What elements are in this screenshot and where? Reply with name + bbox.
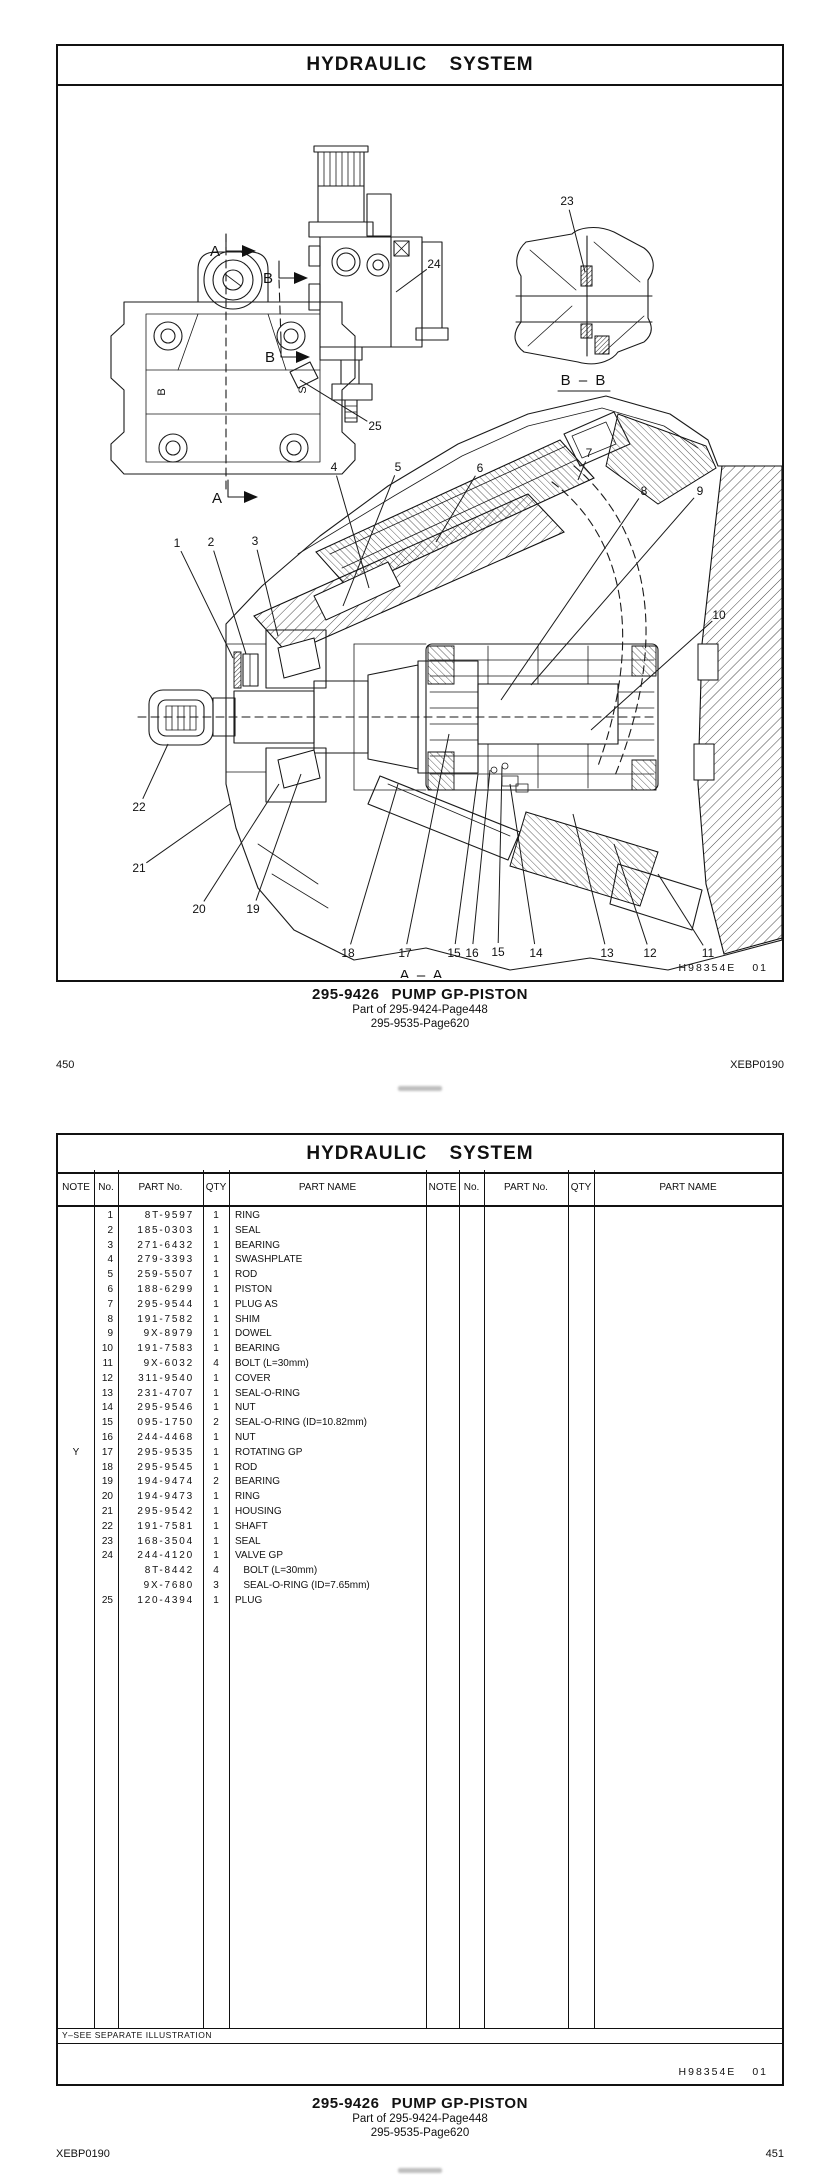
table-row: 23 168-3504 1 SEAL xyxy=(58,1535,782,1550)
cell-qty: 1 xyxy=(203,1342,229,1357)
cell-part-name: BEARING xyxy=(229,1342,426,1357)
cell-part-no: 191-7581 xyxy=(118,1520,203,1535)
callout-label: 15 xyxy=(491,945,505,959)
cell-part-no: 8T-9597 xyxy=(118,1209,203,1224)
print-mark xyxy=(398,2168,442,2173)
callout-leader xyxy=(498,766,502,943)
cell-note xyxy=(58,1357,94,1372)
cell-note xyxy=(58,1298,94,1313)
cell-no: 24 xyxy=(94,1549,118,1564)
cell-no: 10 xyxy=(94,1342,118,1357)
callout-leader xyxy=(143,744,168,799)
callout-label: 13 xyxy=(600,946,614,960)
cell-part-no: 244-4120 xyxy=(118,1549,203,1564)
callout-label: 9 xyxy=(697,484,704,498)
cell-part-no: 295-9535 xyxy=(118,1446,203,1461)
table-row: 21 295-9542 1 HOUSING xyxy=(58,1505,782,1520)
callout-leader xyxy=(214,551,246,654)
cell-qty: 3 xyxy=(203,1579,229,1594)
cell-part-name: SEAL xyxy=(229,1224,426,1239)
callout-leader xyxy=(591,621,712,730)
cell-qty: 1 xyxy=(203,1490,229,1505)
cell-qty: 1 xyxy=(203,1224,229,1239)
cell-part-name: SEAL-O-RING (ID=7.65mm) xyxy=(229,1579,426,1594)
cell-note xyxy=(58,1520,94,1535)
cell-no: 4 xyxy=(94,1253,118,1268)
cell-no: 17 xyxy=(94,1446,118,1461)
cell-qty: 1 xyxy=(203,1239,229,1254)
cell-no: 5 xyxy=(94,1268,118,1283)
pump-top-view: B S xyxy=(111,234,355,494)
cell-qty: 1 xyxy=(203,1268,229,1283)
cell-note xyxy=(58,1431,94,1446)
table-row: 8T-8442 4 BOLT (L=30mm) xyxy=(58,1564,782,1579)
cell-note xyxy=(58,1416,94,1431)
section-b-b-view: B – B xyxy=(515,228,653,391)
drawing-code: H98354E01 xyxy=(679,2066,768,2078)
callout-label: 21 xyxy=(132,861,146,875)
callout-label: 4 xyxy=(331,460,338,474)
cell-part-no: 295-9542 xyxy=(118,1505,203,1520)
pump-diagram: B S A A B B xyxy=(58,84,782,978)
cell-no: 7 xyxy=(94,1298,118,1313)
section-letter-a-bottom: A xyxy=(212,490,222,507)
cell-no: 25 xyxy=(94,1594,118,1609)
cell-part-no: 295-9544 xyxy=(118,1298,203,1313)
port-label-b: B xyxy=(156,388,168,395)
page-title-bar: HYDRAULIC SYSTEM xyxy=(58,1135,782,1174)
cell-note xyxy=(58,1253,94,1268)
cell-note xyxy=(58,1401,94,1416)
cell-qty: 4 xyxy=(203,1357,229,1372)
cell-no: 19 xyxy=(94,1475,118,1490)
cell-no: 22 xyxy=(94,1520,118,1535)
table-row: 18 295-9545 1 ROD xyxy=(58,1461,782,1476)
cell-note xyxy=(58,1387,94,1402)
cell-note xyxy=(58,1579,94,1594)
cell-qty: 2 xyxy=(203,1475,229,1490)
cell-part-no: 9X-7680 xyxy=(118,1579,203,1594)
col-note: NOTE xyxy=(58,1182,94,1193)
callout-label: 5 xyxy=(395,460,402,474)
cell-part-no: 188-6299 xyxy=(118,1283,203,1298)
cell-part-no: 271-6432 xyxy=(118,1239,203,1254)
cell-qty: 1 xyxy=(203,1387,229,1402)
table-row: 9X-7680 3 SEAL-O-RING (ID=7.65mm) xyxy=(58,1579,782,1594)
cell-qty: 1 xyxy=(203,1327,229,1342)
table-row: 24 244-4120 1 VALVE GP xyxy=(58,1549,782,1564)
cell-no: 23 xyxy=(94,1535,118,1550)
drawing-code-value: H98354E xyxy=(679,2066,737,2078)
callout-label: 25 xyxy=(368,419,382,433)
caption-parent-ref: Part of 295-9424-Page448 xyxy=(0,1003,840,1017)
cell-part-name: VALVE GP xyxy=(229,1549,426,1564)
cell-part-name: SHIM xyxy=(229,1313,426,1328)
cell-qty: 1 xyxy=(203,1505,229,1520)
callout-leader xyxy=(256,774,301,901)
cell-no: 14 xyxy=(94,1401,118,1416)
cell-note xyxy=(58,1209,94,1224)
caption-alt-ref: 295-9535-Page620 xyxy=(0,2126,840,2140)
table-row: 22 191-7581 1 SHAFT xyxy=(58,1520,782,1535)
callout-label: 2 xyxy=(208,535,215,549)
cell-part-name: SEAL xyxy=(229,1535,426,1550)
cell-qty: 1 xyxy=(203,1313,229,1328)
cell-part-no: 244-4468 xyxy=(118,1431,203,1446)
cell-part-name: ROD xyxy=(229,1268,426,1283)
table-row: 19 194-9474 2 BEARING xyxy=(58,1475,782,1490)
cell-part-name: DOWEL xyxy=(229,1327,426,1342)
table-row: 13 231-4707 1 SEAL-O-RING xyxy=(58,1387,782,1402)
cell-part-name: SHAFT xyxy=(229,1520,426,1535)
page2-doc-code: XEBP0190 xyxy=(56,2148,110,2160)
cell-no: 11 xyxy=(94,1357,118,1372)
cell-no: 6 xyxy=(94,1283,118,1298)
callout-label: 7 xyxy=(586,446,593,460)
cell-part-name: SEAL-O-RING (ID=10.82mm) xyxy=(229,1416,426,1431)
table-row: 5 259-5507 1 ROD xyxy=(58,1268,782,1283)
cell-part-name: ROD xyxy=(229,1461,426,1476)
cell-no: 3 xyxy=(94,1239,118,1254)
callout-label: 10 xyxy=(712,608,726,622)
drawing-code-value: H98354E xyxy=(679,962,737,974)
cell-part-name: RING xyxy=(229,1490,426,1505)
cell-part-name: PLUG AS xyxy=(229,1298,426,1313)
cell-note xyxy=(58,1372,94,1387)
cell-part-name: RING xyxy=(229,1209,426,1224)
table-row: 15 095-1750 2 SEAL-O-RING (ID=10.82mm) xyxy=(58,1416,782,1431)
table-row: 25 120-4394 1 PLUG xyxy=(58,1594,782,1609)
cell-qty: 4 xyxy=(203,1564,229,1579)
cell-part-name: SWASHPLATE xyxy=(229,1253,426,1268)
drawing-code: H98354E01 xyxy=(679,962,768,974)
table-row: 14 295-9546 1 NUT xyxy=(58,1401,782,1416)
col-no-2: No. xyxy=(459,1182,484,1193)
cell-part-name: ROTATING GP xyxy=(229,1446,426,1461)
cell-qty: 1 xyxy=(203,1535,229,1550)
cell-note xyxy=(58,1475,94,1490)
callout-label: 17 xyxy=(398,946,412,960)
cell-qty: 1 xyxy=(203,1594,229,1609)
table-row: 7 295-9544 1 PLUG AS xyxy=(58,1298,782,1313)
cell-no: 2 xyxy=(94,1224,118,1239)
cell-note xyxy=(58,1268,94,1283)
caption-alt-ref: 295-9535-Page620 xyxy=(0,1017,840,1031)
callout-leader xyxy=(351,784,398,944)
cell-part-no: 231-4707 xyxy=(118,1387,203,1402)
cell-no: 13 xyxy=(94,1387,118,1402)
cell-note xyxy=(58,1283,94,1298)
cell-no xyxy=(94,1564,118,1579)
col-part-name: PART NAME xyxy=(229,1182,426,1193)
table-row: 3 271-6432 1 BEARING xyxy=(58,1239,782,1254)
table-row: 11 9X-6032 4 BOLT (L=30mm) xyxy=(58,1357,782,1372)
callout-label: 15 xyxy=(447,946,461,960)
cell-part-no: 191-7583 xyxy=(118,1342,203,1357)
cell-no: 18 xyxy=(94,1461,118,1476)
callout-label: 16 xyxy=(465,946,479,960)
cell-qty: 1 xyxy=(203,1431,229,1446)
scanned-parts-manual: { "doc": { "title": "HYDRAULIC SYSTEM", … xyxy=(0,0,840,2178)
section-view-aa-label: A – A xyxy=(399,967,444,978)
table-row: 9 9X-8979 1 DOWEL xyxy=(58,1327,782,1342)
section-letter-b-top: B xyxy=(263,270,273,287)
section-letter-b-bottom: B xyxy=(265,349,275,366)
cell-part-no: 9X-8979 xyxy=(118,1327,203,1342)
parts-table-header: NOTE No. PART No. QTY PART NAME NOTE No.… xyxy=(58,1170,782,1207)
section-marker-b: B B xyxy=(263,261,310,366)
cell-no: 9 xyxy=(94,1327,118,1342)
page-451: HYDRAULIC SYSTEM NOTE No. PART No. QTY P… xyxy=(56,1133,784,2086)
cell-part-name: PLUG xyxy=(229,1594,426,1609)
cell-qty: 1 xyxy=(203,1209,229,1224)
cell-part-no: 194-9473 xyxy=(118,1490,203,1505)
page-450: HYDRAULIC SYSTEM xyxy=(56,44,784,982)
cell-part-name: BOLT (L=30mm) xyxy=(229,1357,426,1372)
cell-part-no: 168-3504 xyxy=(118,1535,203,1550)
page-title: HYDRAULIC SYSTEM xyxy=(306,54,533,76)
cell-part-no: 120-4394 xyxy=(118,1594,203,1609)
cell-part-no: 295-9546 xyxy=(118,1401,203,1416)
cell-no: 8 xyxy=(94,1313,118,1328)
cell-part-no: 295-9545 xyxy=(118,1461,203,1476)
callout-label: 20 xyxy=(192,902,206,916)
cell-no: 1 xyxy=(94,1209,118,1224)
cell-part-no: 259-5507 xyxy=(118,1268,203,1283)
cell-part-name: SEAL-O-RING xyxy=(229,1387,426,1402)
callout-label: 12 xyxy=(643,946,657,960)
cell-no: 20 xyxy=(94,1490,118,1505)
table-footnote: Y–SEE SEPARATE ILLUSTRATION xyxy=(58,2028,782,2044)
callout-leader xyxy=(658,874,703,945)
cell-note xyxy=(58,1564,94,1579)
page-title: HYDRAULIC SYSTEM xyxy=(306,1143,533,1165)
table-row: 1 8T-9597 1 RING xyxy=(58,1209,782,1224)
cell-part-no: 095-1750 xyxy=(118,1416,203,1431)
cell-note xyxy=(58,1342,94,1357)
page2-caption: 295-9426PUMP GP-PISTON Part of 295-9424-… xyxy=(0,2095,840,2140)
callout-label: 6 xyxy=(477,461,484,475)
col-part-no: PART No. xyxy=(118,1182,203,1193)
cell-note xyxy=(58,1313,94,1328)
cell-part-no: 9X-6032 xyxy=(118,1357,203,1372)
section-a-a-view: A – A xyxy=(138,396,782,978)
cell-part-name: HOUSING xyxy=(229,1505,426,1520)
drawing-revision: 01 xyxy=(752,962,768,974)
section-letter-a-top: A xyxy=(210,243,220,260)
callout-label: 19 xyxy=(246,902,260,916)
cell-note xyxy=(58,1224,94,1239)
table-row: 20 194-9473 1 RING xyxy=(58,1490,782,1505)
caption-parent-ref: Part of 295-9424-Page448 xyxy=(0,2112,840,2126)
cell-part-name: NUT xyxy=(229,1431,426,1446)
cell-note xyxy=(58,1505,94,1520)
cell-part-no: 191-7582 xyxy=(118,1313,203,1328)
cell-note xyxy=(58,1327,94,1342)
table-row: 4 279-3393 1 SWASHPLATE xyxy=(58,1253,782,1268)
callout-leader xyxy=(569,210,585,272)
cell-qty: 2 xyxy=(203,1416,229,1431)
table-row: 10 191-7583 1 BEARING xyxy=(58,1342,782,1357)
page2-footer: XEBP0190 451 xyxy=(56,2148,784,2160)
cell-note xyxy=(58,1490,94,1505)
cell-part-no: 279-3393 xyxy=(118,1253,203,1268)
cell-part-name: BOLT (L=30mm) xyxy=(229,1564,426,1579)
table-row: 12 311-9540 1 COVER xyxy=(58,1372,782,1387)
cell-part-name: NUT xyxy=(229,1401,426,1416)
cell-qty: 1 xyxy=(203,1549,229,1564)
callout-leader xyxy=(146,804,230,863)
cell-note: Y xyxy=(58,1446,94,1461)
cell-no: 21 xyxy=(94,1505,118,1520)
cell-note xyxy=(58,1461,94,1476)
cell-note xyxy=(58,1549,94,1564)
cell-qty: 1 xyxy=(203,1253,229,1268)
cell-qty: 1 xyxy=(203,1283,229,1298)
print-mark xyxy=(398,1086,442,1091)
cell-no: 12 xyxy=(94,1372,118,1387)
cell-no: 16 xyxy=(94,1431,118,1446)
cell-qty: 1 xyxy=(203,1446,229,1461)
table-row: 16 244-4468 1 NUT xyxy=(58,1431,782,1446)
page2-number: 451 xyxy=(766,2148,784,2160)
cell-note xyxy=(58,1239,94,1254)
callout-label: 23 xyxy=(560,194,574,208)
col-qty: QTY xyxy=(203,1182,229,1193)
page1-footer: 450 XEBP0190 xyxy=(56,1059,784,1071)
page1-doc-code: XEBP0190 xyxy=(730,1059,784,1071)
callout-label: 24 xyxy=(427,257,441,271)
callout-label: 1 xyxy=(174,536,181,550)
page1-caption: 295-9426PUMP GP-PISTON Part of 295-9424-… xyxy=(0,986,840,1031)
cell-part-no: 185-0303 xyxy=(118,1224,203,1239)
cell-part-name: COVER xyxy=(229,1372,426,1387)
callout-label: 11 xyxy=(702,946,715,960)
drawing-revision: 01 xyxy=(752,2066,768,2078)
page-title-bar: HYDRAULIC SYSTEM xyxy=(58,46,782,86)
valve-group-drawing xyxy=(290,146,448,422)
callout-leader xyxy=(455,774,478,944)
table-row: 6 188-6299 1 PISTON xyxy=(58,1283,782,1298)
col-part-name-2: PART NAME xyxy=(594,1182,782,1193)
section-marker-a: A A xyxy=(210,234,258,507)
callout-leader xyxy=(181,551,233,658)
callout-label: 8 xyxy=(641,484,648,498)
page1-number: 450 xyxy=(56,1059,74,1071)
section-view-bb-label: B – B xyxy=(561,372,608,389)
cell-part-name: PISTON xyxy=(229,1283,426,1298)
cell-note xyxy=(58,1594,94,1609)
cell-note xyxy=(58,1535,94,1550)
cell-part-no: 311-9540 xyxy=(118,1372,203,1387)
table-row: Y 17 295-9535 1 ROTATING GP xyxy=(58,1446,782,1461)
callout-leader xyxy=(204,784,279,901)
caption-title: 295-9426PUMP GP-PISTON xyxy=(0,986,840,1003)
parts-table-body: 1 8T-9597 1 RING 2 185-0303 1 SEAL xyxy=(58,1209,782,1609)
cell-qty: 1 xyxy=(203,1461,229,1476)
table-row: 8 191-7582 1 SHIM xyxy=(58,1313,782,1328)
cell-no xyxy=(94,1579,118,1594)
cell-part-name: BEARING xyxy=(229,1475,426,1490)
cell-qty: 1 xyxy=(203,1401,229,1416)
cell-part-no: 8T-8442 xyxy=(118,1564,203,1579)
cell-part-no: 194-9474 xyxy=(118,1475,203,1490)
col-part-no-2: PART No. xyxy=(484,1182,568,1193)
col-note-2: NOTE xyxy=(426,1182,459,1193)
col-qty-2: QTY xyxy=(568,1182,594,1193)
callout-label: 14 xyxy=(529,946,543,960)
cell-qty: 1 xyxy=(203,1298,229,1313)
cell-qty: 1 xyxy=(203,1372,229,1387)
cell-qty: 1 xyxy=(203,1520,229,1535)
table-row: 2 185-0303 1 SEAL xyxy=(58,1224,782,1239)
col-no: No. xyxy=(94,1182,118,1193)
callout-label: 22 xyxy=(132,800,146,814)
callout-label: 18 xyxy=(341,946,355,960)
cell-no: 15 xyxy=(94,1416,118,1431)
cell-part-name: BEARING xyxy=(229,1239,426,1254)
caption-title: 295-9426PUMP GP-PISTON xyxy=(0,2095,840,2112)
callout-label: 3 xyxy=(252,534,259,548)
